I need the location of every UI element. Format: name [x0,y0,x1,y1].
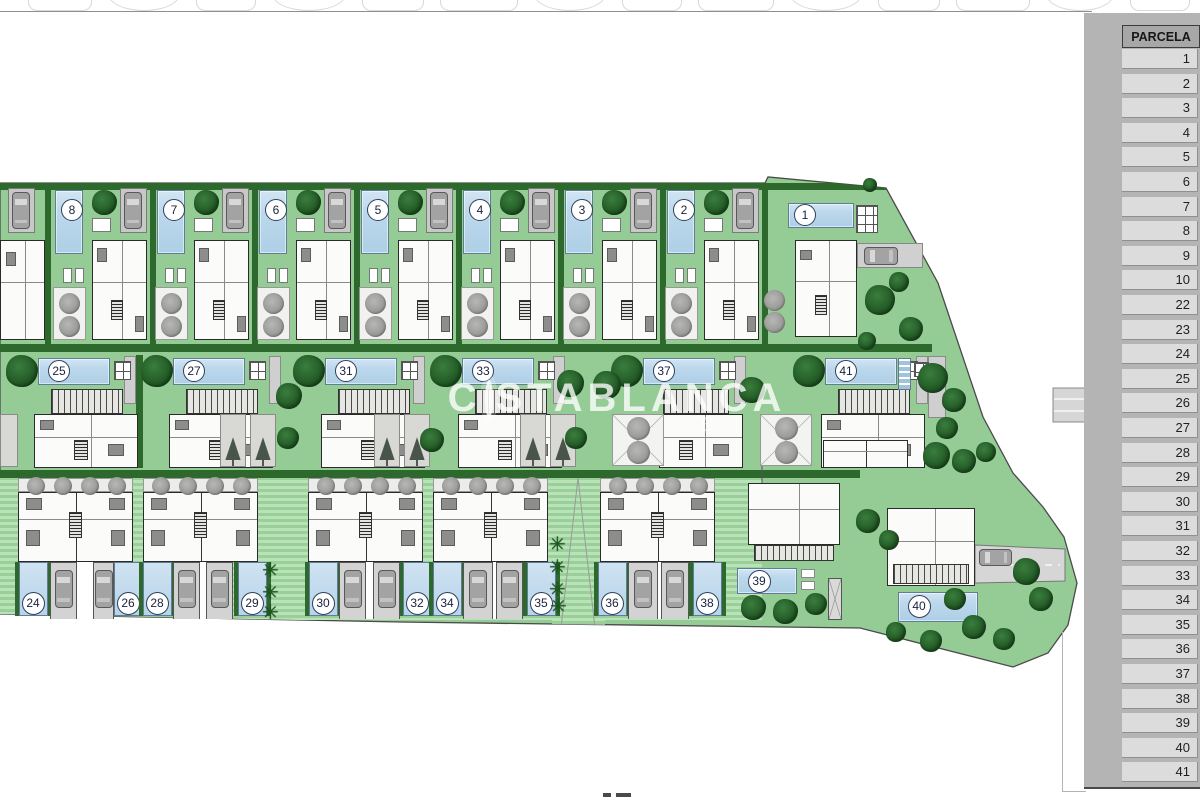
gray-tree-icon [27,477,45,495]
furniture-detail [316,530,330,546]
parcel-number-label: 4 [469,199,491,221]
outdoor-kitchen [249,361,266,380]
furniture-detail [709,248,719,262]
tree-icon [602,190,627,215]
furniture-detail [524,498,540,510]
gray-tree-icon [161,316,182,337]
parcel-number-label: 25 [48,360,70,382]
tree-icon [944,588,966,610]
tree-icon [296,190,321,215]
parcel-table-cell[interactable]: 35 [1122,615,1198,635]
parcel-number-label: 41 [835,360,857,382]
parcel-table-cell[interactable]: 28 [1122,443,1198,463]
garden-structure [828,578,842,620]
parcel-number-label: 3 [571,199,593,221]
house-fragment [823,440,908,468]
tree-icon [741,595,766,620]
gray-tree-icon [569,316,590,337]
gray-tree-icon [775,417,798,440]
parcel-table-cell[interactable]: 25 [1122,369,1198,389]
furniture-detail [175,420,189,430]
furniture-detail [543,316,552,332]
tree-icon [889,272,909,292]
tree-icon [398,190,423,215]
outdoor-kitchen [114,361,131,380]
sheet-frame-vertical [1062,632,1063,791]
car-top-view-icon [736,192,754,229]
furniture-detail [199,248,209,262]
parcel-number-label: 29 [241,592,264,615]
sun-lounger [369,268,378,283]
outdoor-kitchen [401,361,418,380]
gray-tree-icon [59,293,80,314]
tree-icon [739,377,765,403]
furniture-detail [339,316,348,332]
gray-tree-icon [627,441,650,464]
parcel-table-cell[interactable]: 40 [1122,738,1198,758]
outdoor-table [296,218,315,232]
car-top-view-icon [124,192,142,229]
gray-tree-icon [627,417,650,440]
car-top-view-icon [979,549,1012,566]
sun-lounger [687,268,696,283]
stairs-detail [621,300,633,320]
parcel-table-cell[interactable]: 39 [1122,713,1198,733]
car-top-view-icon [501,570,519,608]
car-top-view-icon [532,192,550,229]
palm-tree-icon: ✳ [262,583,282,603]
parcel-number-label: 1 [794,204,816,226]
tree-icon [993,628,1015,650]
sun-lounger [471,268,480,283]
solar-panel-detail [898,358,911,390]
sun-lounger [165,268,174,283]
villa-floorplan [748,483,840,545]
parcel-number-label: 24 [22,592,45,615]
cypress-tree-icon: ▲ [220,430,246,465]
furniture-detail [747,316,756,332]
tree-icon [92,190,117,215]
stairs-detail [484,512,497,538]
outdoor-kitchen [538,361,555,380]
parcel-table-cell[interactable]: 6 [1122,172,1198,192]
furniture-detail [26,530,40,546]
parcel-table-cell[interactable]: 36 [1122,639,1198,659]
car-top-view-icon [469,570,487,608]
furniture-detail [464,420,478,430]
furniture-detail [40,420,54,430]
stairs-detail [359,512,372,538]
tree-icon [858,332,876,350]
furniture-detail [97,248,107,262]
gray-tree-icon [161,293,182,314]
tree-icon [942,388,966,412]
gray-tree-icon [496,477,514,495]
palm-tree-icon: ✳ [262,561,282,581]
outdoor-table [602,218,621,232]
outdoor-table [500,218,519,232]
cropped-footer-text [603,793,611,797]
gray-tree-icon [179,477,197,495]
gray-tree-icon [398,477,416,495]
tree-icon [1029,587,1053,611]
gray-tree-icon [523,477,541,495]
stairs-detail [213,300,225,320]
gray-tree-icon [663,477,681,495]
tree-icon [936,417,958,439]
furniture-detail [151,498,167,510]
furniture-detail [236,530,250,546]
car-top-view-icon [634,570,652,608]
tree-icon [593,371,621,399]
cypress-tree-strip: ▲ [520,414,546,467]
furniture-detail [691,498,707,510]
furniture-detail [800,250,812,260]
tree-icon [962,615,986,639]
furniture-detail [441,530,455,546]
car-top-view-icon [430,192,448,229]
tree-icon [856,509,880,533]
palm-tree-icon: ✳ [262,603,282,623]
pergola-roof [475,389,547,414]
walkway-gap [77,562,93,619]
title-letter-fragment [1130,0,1190,11]
palm-tree-icon: ✳ [550,597,570,617]
car-top-view-icon [378,570,396,608]
tree-icon [863,178,877,192]
tree-icon [141,355,173,387]
parcel-table-cell[interactable]: 29 [1122,467,1198,487]
cypress-tree-icon: ▲ [250,430,276,465]
car-top-view-icon [666,570,684,608]
plan-feature-layer: 87654321252731333741▲▲▲▲▲▲24262829303234… [0,0,1090,800]
gray-tree-icon [54,477,72,495]
sun-lounger [675,268,684,283]
pergola-roof [338,389,410,414]
sun-lounger [573,268,582,283]
parcel-number-label: 34 [436,592,459,615]
parcel-number-label: 36 [601,592,624,615]
tree-icon [886,622,906,642]
sun-lounger [483,268,492,283]
gray-tree-icon [636,477,654,495]
stairs-detail [723,300,735,320]
gray-tree-icon [569,293,590,314]
tree-icon [194,190,219,215]
gray-tree-icon [365,293,386,314]
parcel-table-cell[interactable]: 37 [1122,664,1198,684]
parcel-table-cell[interactable]: 5 [1122,147,1198,167]
tree-icon [430,355,462,387]
stairs-detail [498,440,512,460]
tree-icon [976,442,996,462]
tree-icon [805,593,827,615]
stairs-detail [417,300,429,320]
gray-tree-icon [764,290,785,311]
tree-icon [920,630,942,652]
tree-icon [1013,558,1040,585]
gray-tree-icon [233,477,251,495]
furniture-detail [713,444,729,456]
walkway-gap [493,562,496,619]
furniture-detail [827,420,841,430]
parcel-number-label: 26 [117,592,140,615]
cypress-tree-strip [0,414,18,467]
cypress-tree-strip: ▲ [220,414,246,467]
cropped-footer-text [616,793,631,797]
stairs-detail [361,440,375,460]
car-top-view-icon [95,570,113,608]
parcel-number-label: 31 [335,360,357,382]
tree-icon [293,355,325,387]
parcel-table-cell[interactable]: 38 [1122,689,1198,709]
tree-icon [952,449,976,473]
gray-tree-icon [671,316,692,337]
car-top-view-icon [634,192,652,229]
furniture-detail [608,498,624,510]
tree-icon [276,383,302,409]
furniture-detail [111,530,125,546]
parcel-table-cell[interactable]: 32 [1122,541,1198,561]
parcel-table-cell[interactable]: 27 [1122,418,1198,438]
terrace-pad [801,569,815,578]
furniture-detail [526,530,540,546]
tree-icon [500,190,525,215]
tree-icon [923,442,950,469]
parcel-number-label: 2 [673,199,695,221]
sun-lounger [279,268,288,283]
gray-tree-icon [263,316,284,337]
walkway-gap [200,562,206,619]
furniture-detail [693,530,707,546]
parcel-table-cell[interactable]: 7 [1122,197,1198,217]
gray-tree-icon [152,477,170,495]
pergola-roof [51,389,123,414]
palm-tree-icon: ✳ [549,535,569,555]
parcel-number-label: 8 [61,199,83,221]
furniture-detail [109,498,125,510]
furniture-detail [237,316,246,332]
tree-icon [793,355,825,387]
parcel-table-cell[interactable]: 22 [1122,295,1198,315]
car-top-view-icon [328,192,346,229]
sun-lounger [177,268,186,283]
gray-tree-icon [206,477,224,495]
tree-icon [918,363,948,393]
furniture-detail [108,444,124,456]
outdoor-table [194,218,213,232]
parcel-number-label: 39 [748,570,771,593]
parcel-table-cell[interactable]: 9 [1122,246,1198,266]
car-top-view-icon [211,570,229,608]
gray-tree-icon [108,477,126,495]
parcel-table-cell[interactable]: 2 [1122,74,1198,94]
furniture-detail [135,316,144,332]
tree-icon [6,355,38,387]
sun-lounger [75,268,84,283]
gray-tree-icon [365,316,386,337]
parcel-number-label: 7 [163,199,185,221]
gray-tree-icon [81,477,99,495]
gray-tree-icon [671,293,692,314]
gray-tree-icon [442,477,460,495]
parcel-number-label: 30 [312,592,335,615]
tree-icon [899,317,923,341]
terrace-pad [801,581,815,590]
parcel-table-cell[interactable]: 3 [1122,98,1198,118]
stairs-detail [679,440,693,460]
gray-tree-icon [764,312,785,333]
gray-tree-icon [263,293,284,314]
walkway-gap [366,562,373,619]
tree-icon [879,530,899,550]
furniture-detail [26,498,42,510]
parcel-table-cell[interactable]: 8 [1122,221,1198,241]
parcel-table-cell[interactable]: 1 [1122,49,1198,69]
car-top-view-icon [55,570,73,608]
parcel-table-cell[interactable]: 23 [1122,320,1198,340]
hedge-strip [722,562,726,616]
car-top-view-icon [344,570,362,608]
outdoor-kitchen [856,205,878,233]
outdoor-table [92,218,111,232]
pergola-roof [893,564,969,584]
parcel-number-label: 40 [908,595,931,618]
stairs-detail [519,300,531,320]
parcel-number-label: 6 [265,199,287,221]
gray-tree-icon [371,477,389,495]
walkway-gap [658,562,661,619]
furniture-detail [401,530,415,546]
villa-floorplan [659,414,743,468]
stairs-detail [651,512,664,538]
outdoor-table [398,218,417,232]
furniture-detail [505,248,515,262]
gray-tree-icon [690,477,708,495]
stairs-detail [111,300,123,320]
furniture-detail [607,248,617,262]
parcel-table-cell[interactable]: 26 [1122,393,1198,413]
outdoor-table [704,218,723,232]
furniture-detail [327,420,341,430]
outdoor-kitchen [719,361,736,380]
cypress-tree-strip: ▲ [250,414,276,467]
parcel-table-cell[interactable]: 41 [1122,762,1198,782]
parcel-table-panel: PARCELA 12345678910222324252627282930313… [1084,13,1200,789]
pergola-roof [663,389,729,414]
sun-lounger [63,268,72,283]
parcel-table-cell[interactable]: 24 [1122,344,1198,364]
gray-tree-icon [467,316,488,337]
parcel-number-label: 28 [146,592,169,615]
stairs-detail [194,512,207,538]
gray-tree-icon [469,477,487,495]
parcel-table-cell[interactable]: 30 [1122,492,1198,512]
cypress-tree-icon: ▲ [520,430,546,465]
furniture-detail [608,530,622,546]
sun-lounger [381,268,390,283]
site-plan-page: 87654321252731333741▲▲▲▲▲▲24262829303234… [0,0,1200,800]
stairs-detail [74,440,88,460]
parcel-number-label: 37 [653,360,675,382]
furniture-detail [151,530,165,546]
parcel-number-label: 32 [406,592,429,615]
parcel-table-cell[interactable]: 34 [1122,590,1198,610]
tree-icon [773,599,798,624]
parcel-number-label: 38 [696,592,719,615]
parcel-table-cell[interactable]: 31 [1122,516,1198,536]
parcel-table-header[interactable]: PARCELA [1122,25,1200,48]
pergola-roof [754,545,834,561]
sheet-frame-horizontal [1062,791,1086,792]
parcel-table-cell[interactable]: 33 [1122,566,1198,586]
gray-tree-icon [344,477,362,495]
palm-tree-icon: ✳ [549,558,569,578]
furniture-detail [441,316,450,332]
sun-lounger [267,268,276,283]
furniture-detail [403,248,413,262]
cypress-tree-strip: ▲ [374,414,400,467]
parcel-table-cell[interactable]: 10 [1122,270,1198,290]
tree-icon [557,370,584,397]
car-top-view-icon [864,247,898,265]
parcel-table-cell[interactable]: 4 [1122,123,1198,143]
stairs-detail [69,512,82,538]
car-top-view-icon [12,192,30,229]
stairs-detail [315,300,327,320]
tree-icon [704,190,729,215]
cypress-tree-icon: ▲ [374,430,400,465]
sun-lounger [585,268,594,283]
stairs-detail [815,295,827,315]
tree-icon [420,428,444,452]
furniture-detail [399,498,415,510]
gray-tree-icon [317,477,335,495]
car-top-view-icon [226,192,244,229]
gray-tree-icon [775,441,798,464]
tree-icon [565,427,587,449]
parcel-number-label: 27 [183,360,205,382]
pergola-roof [838,389,910,414]
parcel-number-label: 5 [367,199,389,221]
furniture-detail [316,498,332,510]
gray-tree-icon [467,293,488,314]
furniture-detail [301,248,311,262]
tree-icon [865,285,895,315]
gray-tree-icon [609,477,627,495]
furniture-detail [645,316,654,332]
furniture-detail [234,498,250,510]
tree-icon [277,427,299,449]
furniture-detail [6,252,16,266]
furniture-detail [441,498,457,510]
car-top-view-icon [178,570,196,608]
gray-tree-icon [59,316,80,337]
parcel-number-label: 33 [472,360,494,382]
pergola-roof [186,389,258,414]
